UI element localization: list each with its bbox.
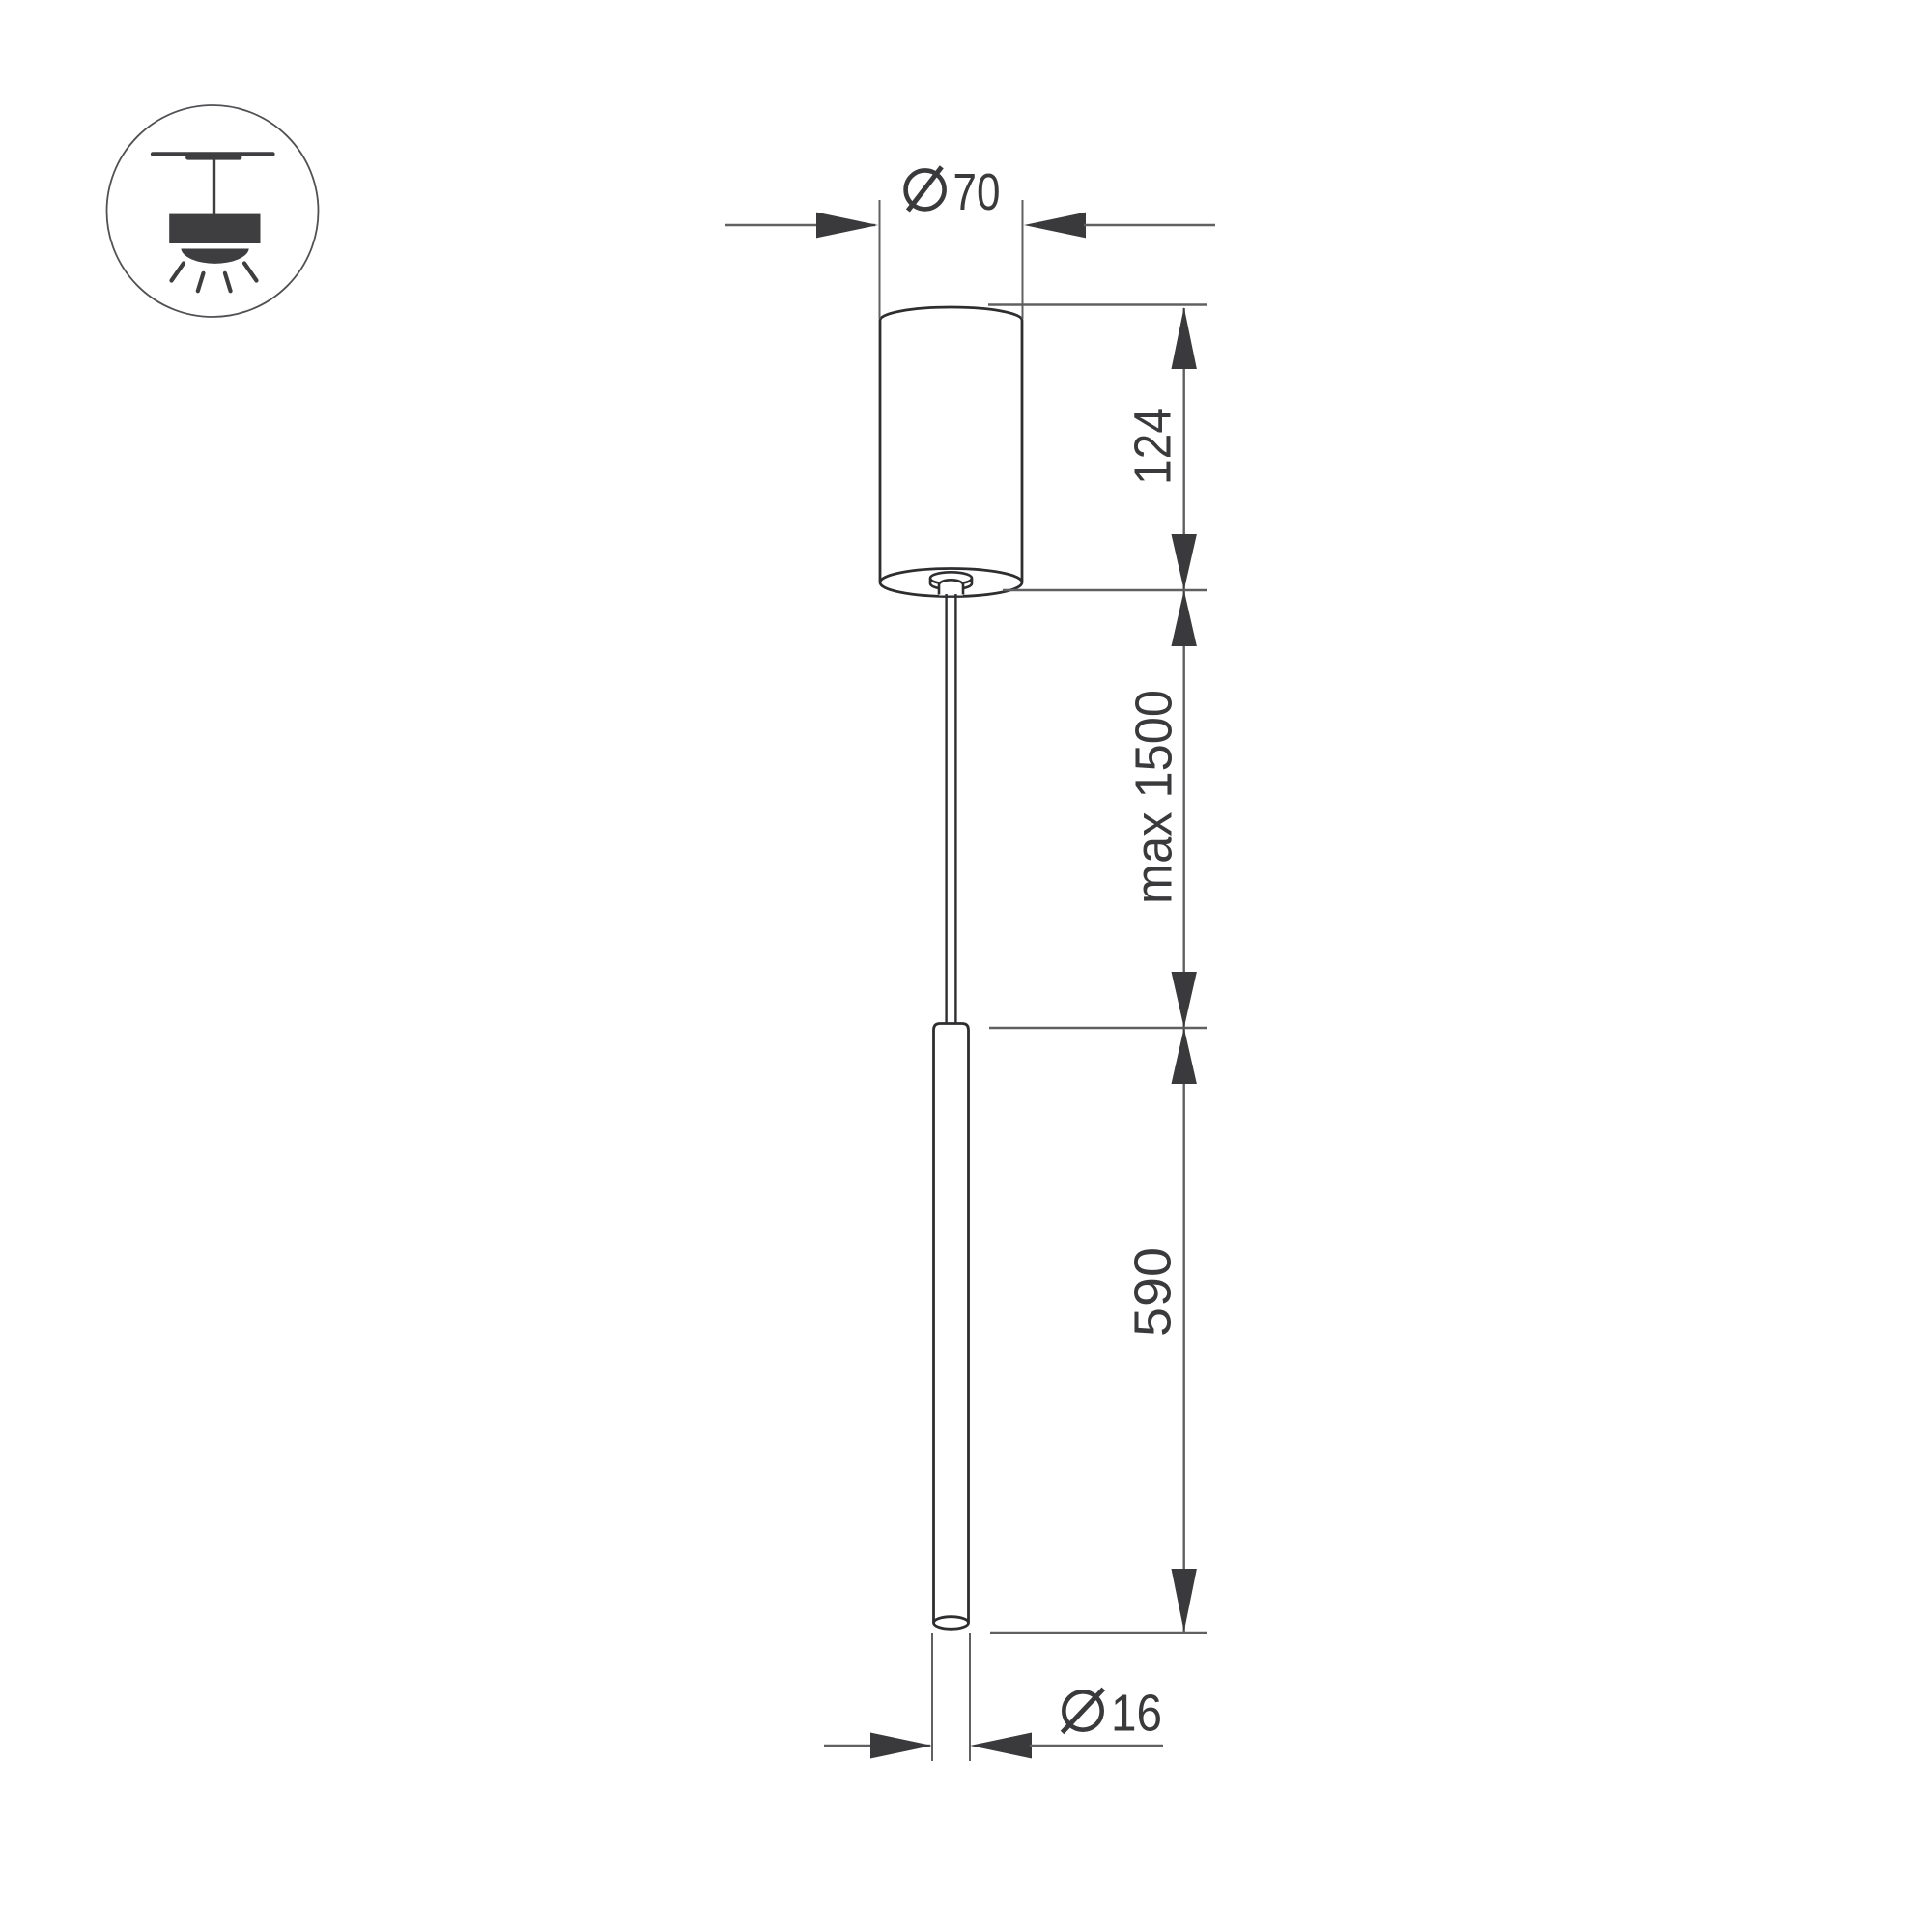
svg-text:70: 70 (953, 164, 1001, 221)
svg-text:124: 124 (1125, 408, 1182, 485)
svg-text:590: 590 (1125, 1247, 1182, 1337)
svg-text:max 1500: max 1500 (1126, 690, 1183, 904)
svg-text:16: 16 (1111, 1686, 1162, 1743)
